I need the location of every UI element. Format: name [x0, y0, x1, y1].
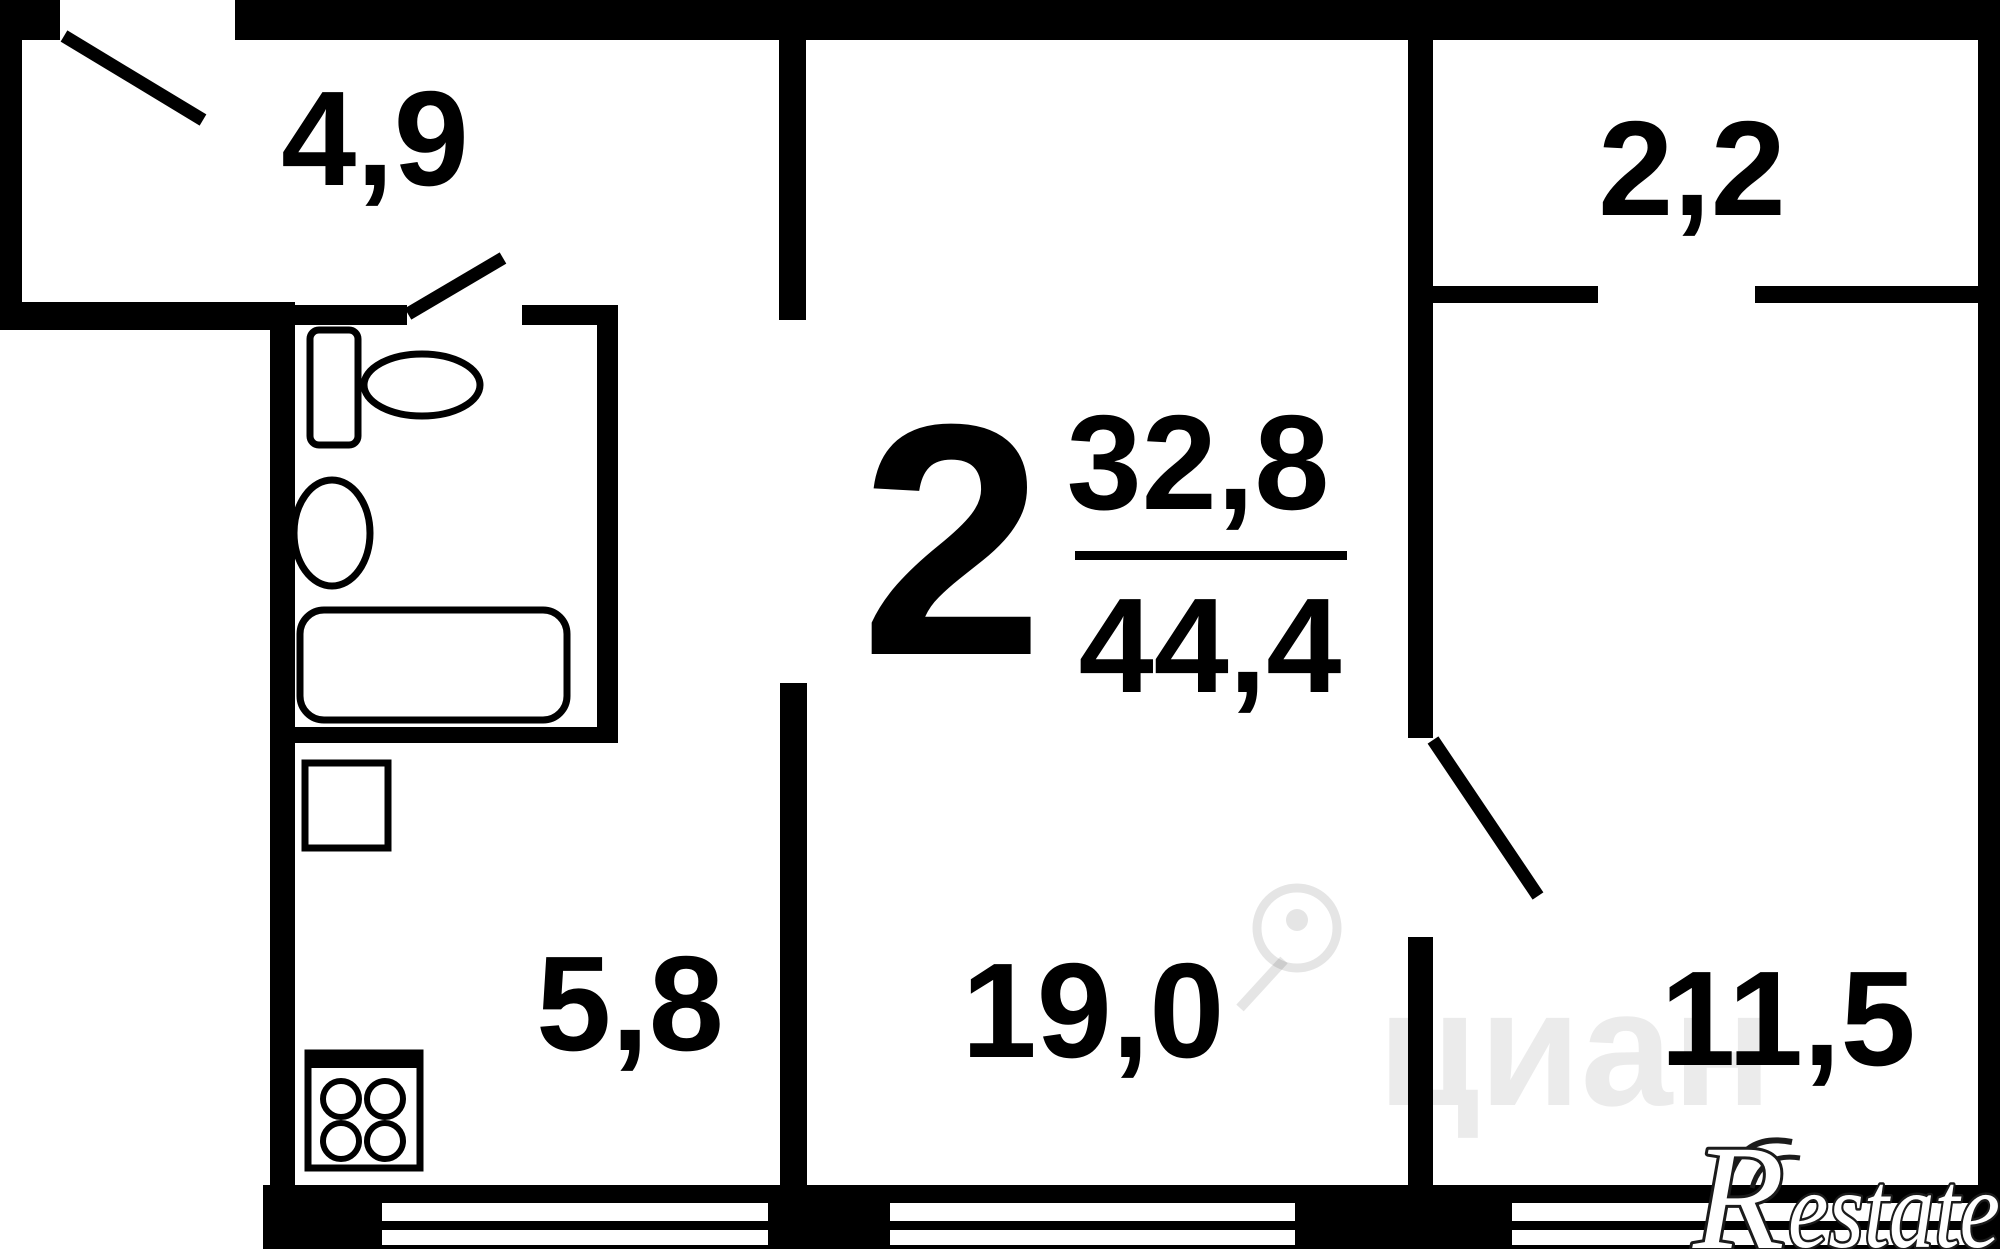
- stove-top-bar: [305, 1050, 423, 1068]
- burner-icon: [323, 1081, 359, 1117]
- fraction-line: [1075, 551, 1347, 560]
- wall-kitchen-living-divider: [780, 683, 807, 1192]
- entrance-door-leaf: [64, 36, 203, 120]
- kitchen-window-slit: [382, 1230, 768, 1245]
- living-area-label: 32,8: [1067, 387, 1330, 538]
- hallway-area-label: 4,9: [281, 63, 469, 214]
- wall-bathroom-top-left: [295, 305, 407, 325]
- bedroom-door-leaf: [1433, 740, 1538, 896]
- vent-shaft-icon: [305, 763, 388, 848]
- wall-balcony-left-segment: [1433, 286, 1598, 303]
- floorplan-page: циан: [0, 0, 2000, 1249]
- burner-icon: [323, 1123, 359, 1159]
- wall-hallway-living-divider: [779, 40, 806, 320]
- watermark-pin-leg: [1240, 960, 1284, 1008]
- living-window-slit: [890, 1203, 1295, 1221]
- wall-right-outer: [1978, 0, 2000, 1249]
- kitchen-window-slit: [382, 1203, 768, 1221]
- stove-burners: [323, 1081, 403, 1159]
- restate-logo: R estate: [1692, 1115, 2000, 1249]
- toilet-cistern-icon: [310, 330, 358, 445]
- wall-hallway-bottom: [0, 302, 295, 330]
- wall-left-outer: [0, 0, 22, 330]
- logo-initial: R: [1692, 1115, 1785, 1249]
- bathroom-fixtures: [294, 330, 567, 848]
- wall-central-upper: [1408, 40, 1433, 738]
- watermark-pin-dot: [1286, 909, 1308, 931]
- kitchen-area-label: 5,8: [536, 928, 724, 1079]
- wall-top: [235, 0, 2000, 40]
- stove-icon: [305, 1050, 423, 1168]
- wall-central-lower: [1408, 937, 1433, 1192]
- total-area-label: 44,4: [1079, 570, 1342, 721]
- balcony-area-label: 2,2: [1598, 93, 1786, 244]
- wall-bathroom-right: [597, 305, 618, 743]
- bathtub-icon: [300, 610, 567, 720]
- sink-icon: [294, 480, 370, 586]
- labels: 4,9 2,2 2 32,8 44,4 5,8 19,0 11,5: [281, 63, 1915, 1094]
- wall-bathroom-bottom: [295, 727, 618, 743]
- wall-balcony-right-segment: [1755, 286, 1980, 303]
- burner-icon: [367, 1081, 403, 1117]
- living-window-slit: [890, 1230, 1295, 1245]
- wall-left-interior: [270, 302, 295, 1192]
- bathroom-door-leaf: [408, 258, 503, 314]
- burner-icon: [367, 1123, 403, 1159]
- logo-rest: estate: [1788, 1149, 2000, 1249]
- floorplan-drawing: циан: [0, 0, 2000, 1249]
- bedroom-area-label: 11,5: [1660, 943, 1915, 1094]
- living-room-area-label: 19,0: [962, 935, 1225, 1086]
- toilet-bowl-icon: [364, 354, 480, 416]
- rooms-count-label: 2: [860, 355, 1044, 724]
